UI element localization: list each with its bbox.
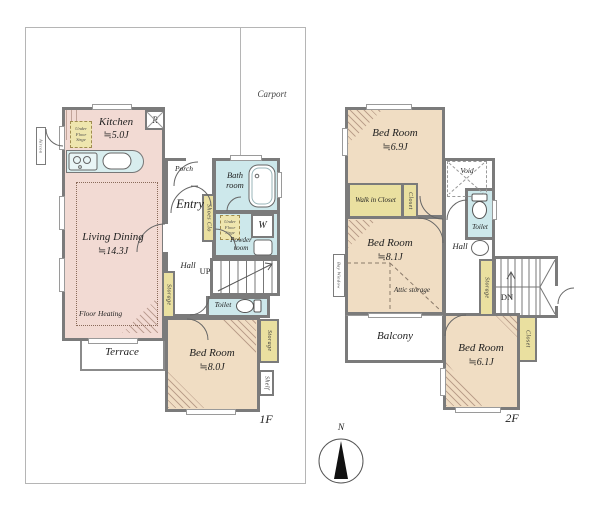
- terrace-label: Terrace: [82, 346, 162, 359]
- attic-storage-label: Attic storage: [380, 286, 444, 294]
- window: [440, 368, 446, 396]
- window: [59, 126, 65, 150]
- kitchen-name: Kitchen: [84, 116, 148, 129]
- exterior-unit-label: Aircon: [39, 139, 44, 153]
- window: [59, 258, 65, 292]
- bay-window-label: Bay Window: [337, 262, 342, 289]
- window: [342, 128, 348, 156]
- bedroom-81-size: ≒8.1J: [346, 252, 434, 264]
- closet-69-label: Closet: [407, 192, 413, 210]
- bedroom-storage-1f-label: Storage: [266, 330, 272, 351]
- powder-label: Powder room: [224, 236, 258, 253]
- hall-storage-2f: Storage: [479, 259, 494, 316]
- hall-storage-1f: Storage: [162, 271, 175, 318]
- living-size: ≒14.3J: [68, 246, 158, 258]
- porch-label: Porch: [170, 164, 198, 173]
- window: [59, 196, 65, 230]
- bedroom-1f-name: Bed Room: [170, 347, 254, 360]
- floor-plan: Carport Shoes Clo Storage Storage Shelf …: [0, 0, 600, 511]
- closet-69: Closet: [402, 183, 418, 218]
- refrigerator: R: [145, 110, 165, 130]
- window: [92, 104, 132, 110]
- window: [455, 407, 501, 413]
- up-label: UP: [194, 266, 216, 276]
- stairs-1f: [210, 258, 280, 296]
- bedroom-storage-1f: Storage: [259, 319, 279, 363]
- walk-in-closet-label: Walk in Closet: [354, 196, 398, 204]
- window: [88, 338, 138, 344]
- bedroom-61-size: ≒6.1J: [439, 357, 523, 369]
- hall-storage-1f-label: Storage: [166, 284, 172, 305]
- door-opening: [186, 158, 212, 163]
- window: [277, 172, 282, 198]
- carport-divider: [240, 28, 241, 165]
- bedroom-1f-size: ≒8.0J: [170, 362, 254, 374]
- carport-label: Carport: [243, 89, 301, 100]
- door-opening: [555, 286, 560, 306]
- bedroom-shelf-1f-label: Shelf: [264, 376, 270, 390]
- washing-machine-label: W: [258, 220, 266, 232]
- balcony-label: Balcony: [353, 330, 437, 343]
- exterior-unit: Aircon: [36, 127, 46, 165]
- window: [230, 155, 262, 161]
- window: [492, 200, 497, 220]
- living-name: Living Dining: [68, 231, 158, 244]
- hall-2f-label: Hall: [442, 241, 478, 251]
- compass-icon: [319, 439, 363, 483]
- hall-storage-2f-label: Storage: [484, 277, 490, 298]
- window: [368, 313, 422, 318]
- bedroom-69-size: ≒6.9J: [353, 142, 437, 154]
- void-label: Void: [449, 166, 485, 175]
- walk-in-closet: Walk in Closet: [348, 183, 403, 218]
- closet-61-label: Closet: [525, 330, 531, 348]
- toilet-1f-label: Toilet: [208, 300, 238, 309]
- door-opening: [163, 224, 168, 252]
- bedroom-69-name: Bed Room: [353, 127, 437, 140]
- floor-heating-label: Floor Heating: [79, 309, 153, 318]
- toilet-2f-label: Toilet: [462, 223, 498, 231]
- bedroom-81-name: Bed Room: [346, 237, 434, 250]
- bedroom-shelf-1f: Shelf: [259, 370, 274, 396]
- bedroom-61-name: Bed Room: [439, 342, 523, 355]
- bath-label: Bath room: [221, 170, 249, 190]
- stairs-2f: [493, 256, 558, 318]
- floor2-label: 2F: [496, 411, 528, 425]
- washing-machine: W: [251, 214, 274, 238]
- refrigerator-label: R: [152, 115, 158, 126]
- bay-window: Bay Window: [333, 254, 345, 297]
- window: [366, 104, 412, 110]
- compass-north-label: N: [332, 423, 350, 434]
- entry-label: Entry: [168, 197, 212, 212]
- dn-label: DN: [494, 292, 520, 302]
- kitchen-size: ≒5.0J: [84, 130, 148, 142]
- kitchen-counter: [66, 150, 144, 173]
- window: [186, 409, 236, 415]
- floor1-label: 1F: [250, 412, 282, 426]
